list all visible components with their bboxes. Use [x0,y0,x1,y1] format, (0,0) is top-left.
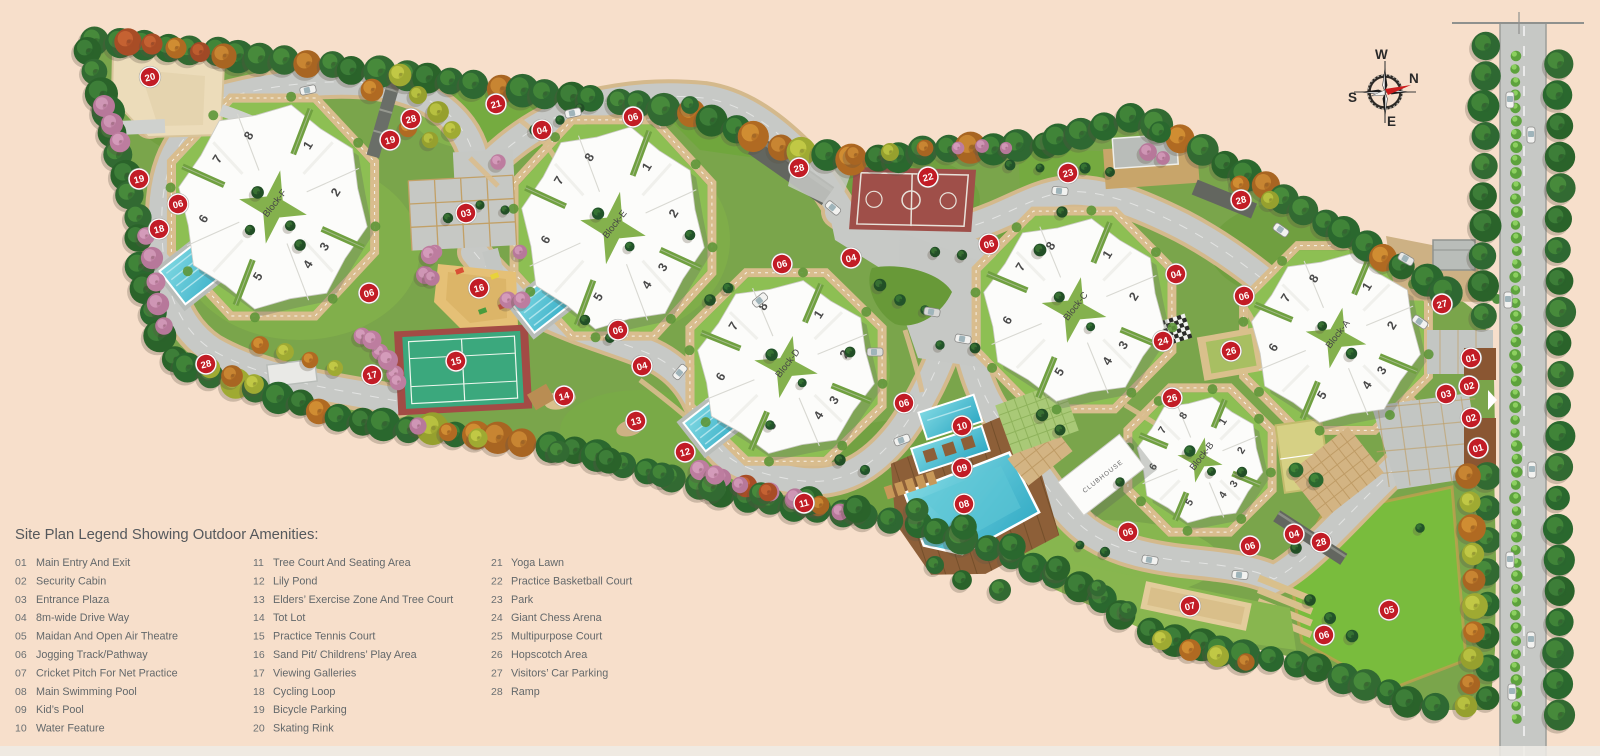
svg-text:Sand Pit/ Childrens’ Play Area: Sand Pit/ Childrens’ Play Area [273,649,417,661]
svg-text:16: 16 [253,649,265,661]
svg-text:Main Swimming Pool: Main Swimming Pool [36,686,137,698]
svg-text:Elders’ Exercise Zone And Tree: Elders’ Exercise Zone And Tree Court [273,594,453,606]
svg-text:12: 12 [253,575,265,587]
svg-text:21: 21 [491,557,503,569]
svg-text:Yoga Lawn: Yoga Lawn [511,557,564,569]
svg-text:Cricket Pitch For Net Practice: Cricket Pitch For Net Practice [36,667,178,679]
svg-text:E: E [1387,114,1396,129]
svg-text:28: 28 [491,686,503,698]
svg-text:27: 27 [491,667,503,679]
svg-text:25: 25 [491,631,503,643]
svg-text:04: 04 [15,612,27,624]
svg-text:Multipurpose Court: Multipurpose Court [511,631,602,643]
svg-text:Visitors’ Car Parking: Visitors’ Car Parking [511,667,608,679]
svg-text:10: 10 [15,723,27,735]
svg-text:15: 15 [253,631,265,643]
svg-text:Skating Rink: Skating Rink [273,723,334,735]
svg-text:26: 26 [491,649,503,661]
svg-text:Site Plan Legend Showing Outdo: Site Plan Legend Showing Outdoor Ameniti… [15,527,319,543]
svg-text:08: 08 [15,686,27,698]
svg-text:8m-wide Drive Way: 8m-wide Drive Way [36,612,130,624]
svg-text:07: 07 [15,667,27,679]
svg-text:20: 20 [253,723,265,735]
svg-text:Tot Lot: Tot Lot [273,612,305,624]
svg-text:23: 23 [491,594,503,606]
svg-text:Entrance Plaza: Entrance Plaza [36,594,109,606]
svg-text:05: 05 [15,631,27,643]
svg-text:Security Cabin: Security Cabin [36,575,106,587]
svg-text:Jogging Track/Pathway: Jogging Track/Pathway [36,649,148,661]
svg-text:11: 11 [253,557,264,569]
svg-text:01: 01 [15,557,27,569]
svg-text:06: 06 [15,649,27,661]
svg-text:17: 17 [253,667,265,679]
svg-text:Lily Pond: Lily Pond [273,575,317,587]
svg-text:Viewing Galleries: Viewing Galleries [273,667,357,679]
svg-text:N: N [1409,71,1419,86]
svg-text:Bicycle Parking: Bicycle Parking [273,704,347,716]
svg-text:03: 03 [15,594,27,606]
svg-text:S: S [1348,90,1357,105]
svg-text:13: 13 [253,594,265,606]
svg-text:Kid’s Pool: Kid’s Pool [36,704,84,716]
svg-text:Hopscotch Area: Hopscotch Area [511,649,587,661]
svg-text:02: 02 [15,575,27,587]
svg-text:Ramp: Ramp [511,686,540,698]
svg-text:Giant Chess Arena: Giant Chess Arena [511,612,602,624]
svg-text:Practice Basketball Court: Practice Basketball Court [511,575,632,587]
svg-text:22: 22 [491,575,503,587]
svg-text:09: 09 [15,704,27,716]
svg-text:19: 19 [253,704,265,716]
svg-text:Cycling Loop: Cycling Loop [273,686,335,698]
svg-text:24: 24 [491,612,503,624]
svg-text:Tree Court And Seating Area: Tree Court And Seating Area [273,557,411,569]
svg-text:18: 18 [253,686,265,698]
svg-text:14: 14 [253,612,265,624]
svg-text:Water Feature: Water Feature [36,723,105,735]
svg-text:Main Entry And Exit: Main Entry And Exit [36,557,130,569]
svg-text:W: W [1375,47,1388,62]
svg-text:Park: Park [511,594,534,606]
svg-text:Practice Tennis Court: Practice Tennis Court [273,631,375,643]
svg-text:Maidan And Open Air Theatre: Maidan And Open Air Theatre [36,631,178,643]
